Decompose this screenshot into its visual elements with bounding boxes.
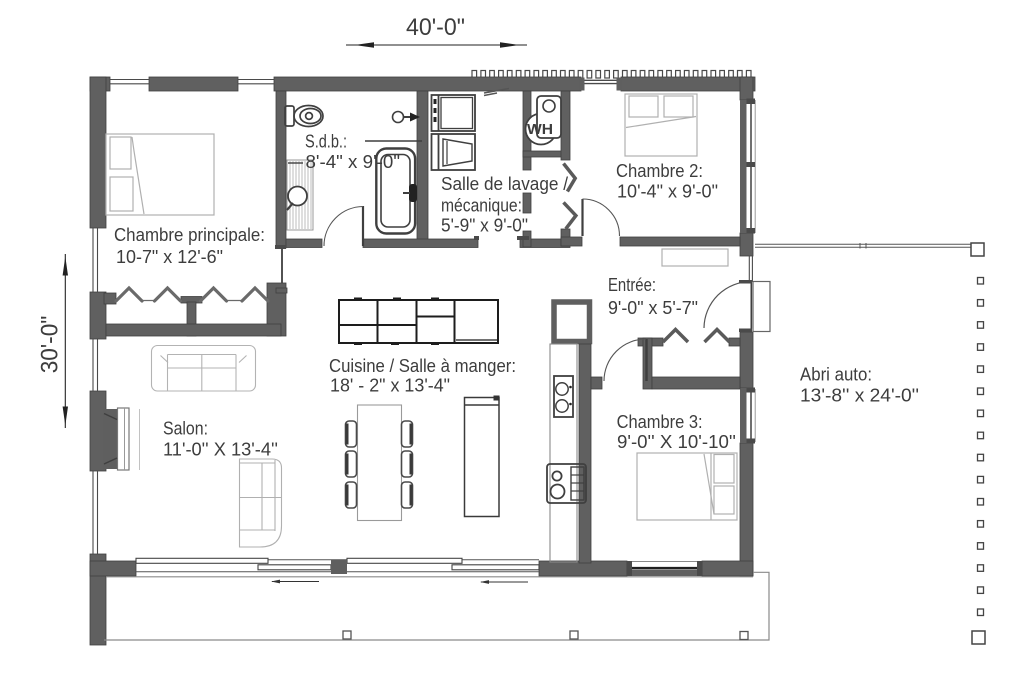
svg-text:13'-8'' x 24'-0'': 13'-8'' x 24'-0'' [800,385,919,406]
svg-text:Chambre 2:: Chambre 2: [616,160,703,181]
svg-text:Salle de lavage /: Salle de lavage / [441,173,569,194]
svg-text:mécanique:: mécanique: [441,195,522,216]
svg-text:Abri auto:: Abri auto: [800,363,872,384]
svg-text:9'-0" x 5'-7": 9'-0" x 5'-7" [608,297,698,318]
svg-text:Chambre principale:: Chambre principale: [114,224,265,245]
svg-text:9'-0'' X 10'-10'': 9'-0'' X 10'-10'' [617,431,736,452]
svg-text:Chambre 3:: Chambre 3: [617,411,703,432]
svg-text:8'-4" x 9'-0": 8'-4" x 9'-0" [306,151,401,172]
svg-text:WH: WH [527,121,553,138]
svg-text:11'-0'' X 13'-4'': 11'-0'' X 13'-4'' [163,439,278,460]
svg-text:5'-9" x 9'-0": 5'-9" x 9'-0" [441,215,528,236]
svg-text:40'-0": 40'-0" [406,14,465,41]
svg-text:18' - 2" x 13'-4": 18' - 2" x 13'-4" [330,375,450,396]
svg-text:10-7" x 12'-6": 10-7" x 12'-6" [116,246,223,267]
svg-text:Entrée:: Entrée: [608,274,656,295]
svg-text:Salon:: Salon: [163,418,208,439]
svg-text:10'-4" x 9'-0": 10'-4" x 9'-0" [617,181,718,202]
svg-text:S.d.b.:: S.d.b.: [305,131,347,152]
svg-text:Cuisine / Salle à manger:: Cuisine / Salle à manger: [329,355,516,376]
svg-text:30'-0": 30'-0" [37,316,64,374]
